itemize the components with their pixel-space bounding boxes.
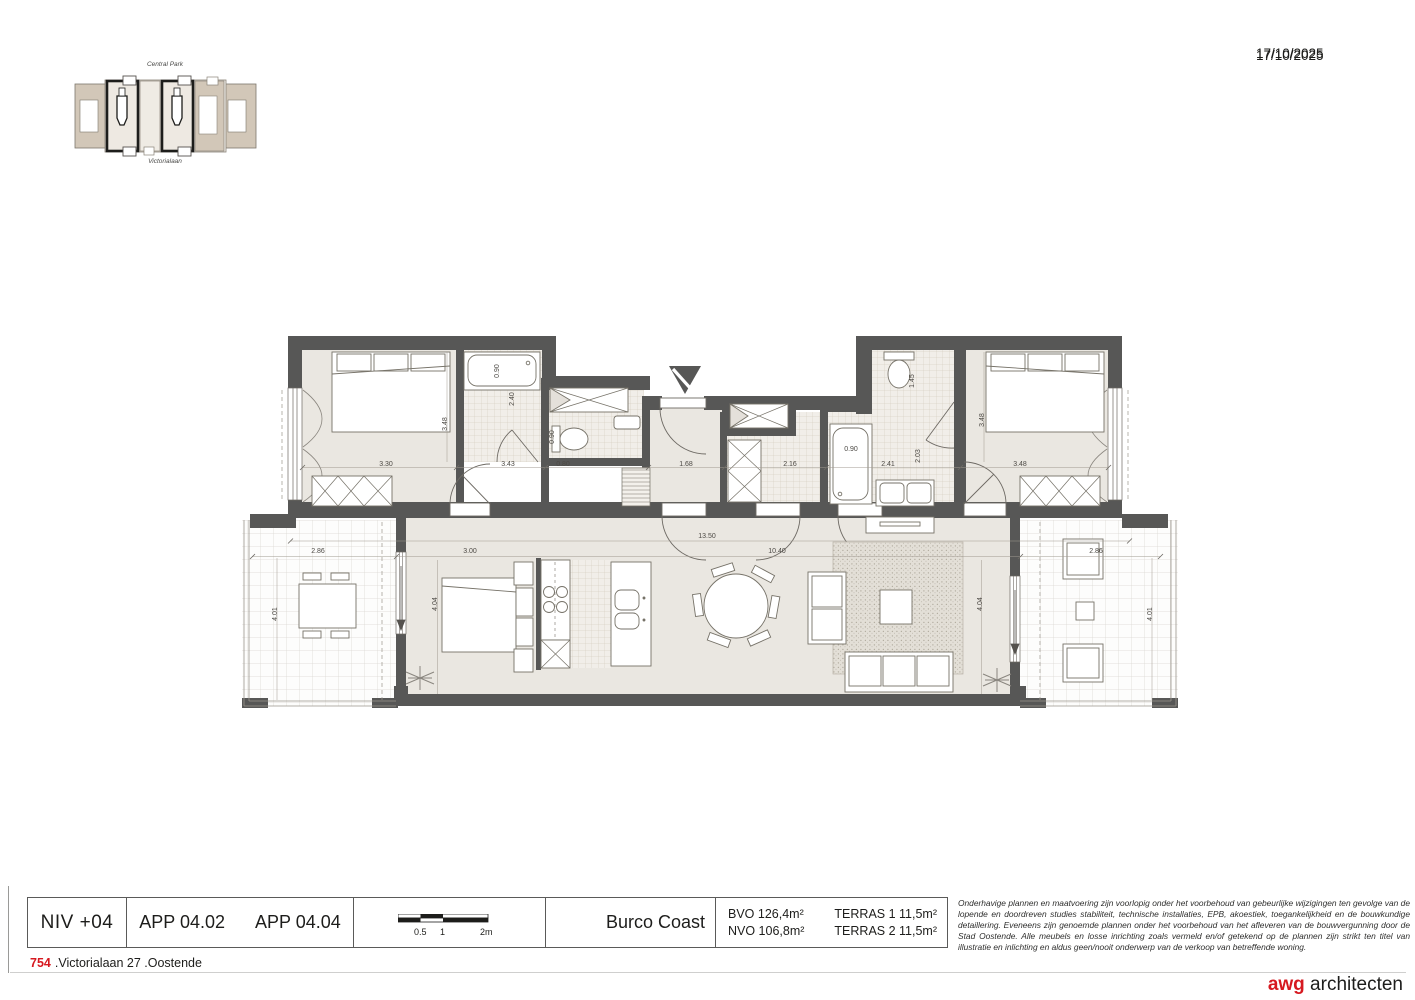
dimension-label: 3.43 (501, 461, 515, 468)
bathtub-1 (464, 352, 540, 390)
apartment-2-label: APP 04.04 (255, 912, 341, 933)
address-text: .Victorialaan 27 .Oostende (55, 956, 202, 970)
kitchen-counter (541, 560, 570, 668)
project-name: Burco Coast (546, 898, 716, 947)
dimension-label: 10.40 (768, 548, 786, 555)
site-map-buildings (75, 76, 256, 156)
dimension-label: 2.86 (311, 548, 325, 555)
bed-right (986, 352, 1104, 432)
bed-left (332, 352, 450, 432)
architect-name: architecten (1310, 974, 1403, 995)
double-washbasin (876, 480, 934, 506)
dimension-label: 13.50 (698, 533, 716, 540)
dimension-label: 0.80 (556, 461, 570, 468)
dimension-label: 2.16 (783, 461, 797, 468)
area-nvo: NVO 106,8m² (728, 924, 804, 938)
entry-door-leaf (660, 398, 706, 408)
dimension-label: 0.90 (549, 430, 556, 444)
wardrobe-right (1020, 476, 1100, 506)
architect-logo: awg architecten (1268, 974, 1403, 996)
entrance-arrow-icon (669, 366, 701, 394)
dimension-label: 3.48 (979, 413, 986, 427)
drawing-sheet: { "sheet": { "date": "17/10/2025" }, "si… (0, 0, 1415, 1000)
site-map-top-label: Central Park (147, 61, 184, 68)
dimension-label: 3.00 (463, 548, 477, 555)
site-map-bottom-label: Victorialaan (148, 158, 182, 165)
dimension-label: 3.48 (442, 417, 449, 431)
dimension-label: 3.48 (1013, 461, 1027, 468)
sliding-door-left (396, 552, 406, 634)
washbasin-small (614, 416, 640, 429)
area-table: BVO 126,4m² NVO 106,8m² TERRAS 1 11,5m² … (716, 898, 947, 947)
kitchen-island (611, 562, 651, 666)
sideboard (866, 517, 934, 533)
toilet-1 (552, 426, 588, 452)
dimension-label: 4.01 (1147, 607, 1154, 621)
area-terras1: TERRAS 1 11,5m² (834, 907, 937, 921)
date-label: 17/10/2025 (1256, 46, 1324, 61)
bathtub-2 (830, 424, 872, 504)
dimension-label: 4.04 (977, 597, 984, 611)
dimension-label: 2.86 (1089, 548, 1103, 555)
apartment-labels: APP 04.02 APP 04.04 (127, 898, 354, 947)
dimension-label: 3.30 (379, 461, 393, 468)
duct-box (730, 404, 788, 428)
dimension-label: 4.04 (432, 597, 439, 611)
dimension-label: 4.01 (272, 607, 279, 621)
hall-closet (728, 440, 761, 502)
dimension-label: 2.40 (509, 392, 516, 406)
scale-bar: 0.5 1 2m (354, 898, 546, 947)
apartment-1-label: APP 04.02 (139, 912, 225, 933)
appliance-cabinet (550, 388, 628, 412)
apartment-plan: 3.303.430.801.682.162.413.483.480.902.40… (242, 336, 1178, 708)
disclaimer-text: Onderhavige plannen en maatvoering zijn … (958, 898, 1410, 953)
scale-tick: 0.5 (414, 927, 427, 937)
sofa (845, 652, 953, 692)
shaft-hatched (622, 468, 650, 506)
level-label: NIV +04 (28, 898, 127, 947)
dimension-label: 2.03 (915, 449, 922, 463)
title-block: NIV +04 APP 04.02 APP 04.04 0.5 1 2m Bur… (27, 897, 948, 948)
kitchen-tile-floor (570, 560, 611, 668)
sliding-door-right (1010, 576, 1020, 662)
area-bvo: BVO 126,4m² (728, 907, 804, 921)
scale-tick: 2m (480, 927, 493, 937)
sheet-frame-line (8, 886, 9, 973)
project-address: 754.Victorialaan 27 .Oostende (30, 956, 202, 970)
dimension-label: 2.41 (881, 461, 895, 468)
dimension-label: 0.90 (494, 364, 501, 378)
armchair (808, 572, 846, 644)
scale-bar-graphic (398, 914, 508, 928)
wardrobe-left (312, 476, 392, 506)
dimension-label: 1.45 (909, 374, 916, 388)
floor-plan-drawing: Central Park Victorialaan (0, 0, 1415, 1000)
area-terras2: TERRAS 2 11,5m² (834, 924, 937, 938)
coffee-table (880, 590, 912, 624)
architect-brand: awg (1268, 974, 1305, 995)
footer-divider (10, 972, 1406, 973)
dimension-label: 0.90 (844, 446, 858, 453)
site-plan-mini-map: Central Park Victorialaan (75, 61, 256, 165)
dimension-label: 1.68 (679, 461, 693, 468)
entry-hall-floor (648, 408, 724, 506)
scale-tick: 1 (440, 927, 445, 937)
project-number: 754 (30, 956, 51, 970)
